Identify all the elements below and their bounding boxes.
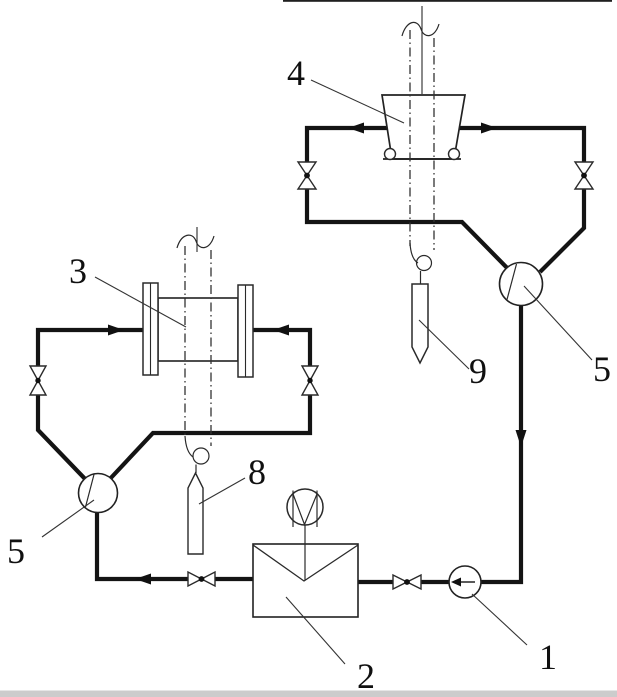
valve-icon-loop4-left [298,162,316,189]
valve-icon-loop4-right [575,162,593,189]
break-symbol-4 [402,22,439,36]
flow-arrow-bottom-left [135,574,151,585]
label-5-left: 5 [7,531,25,571]
flow-arrow-into-3-right [273,325,289,336]
pipe-loop3-right-upper [253,330,310,367]
pipe-riser-left [97,511,188,579]
valves [30,162,593,589]
leader-label-5-right [524,286,592,360]
pipe-loop3-bottom-run [108,394,310,481]
pipe-loop4-left-upper [307,128,387,163]
label-3: 3 [69,251,87,291]
process-flow-diagram: 4 3 9 5 5 8 2 1 [0,0,617,697]
scan-artifact-top-line [283,0,612,2]
valve-icon-loop3-left [30,366,46,395]
vessel-3-body [158,298,238,361]
vessel-4 [382,95,465,160]
lance-9 [412,284,428,363]
vessel-3 [143,283,253,377]
centerline-3-hook [185,436,193,457]
pipe-loop3-left-lower [38,394,88,482]
motor-icon [287,489,323,527]
flow-arrow-downcomer [516,430,527,447]
pipe-loop3-left-upper [38,330,143,367]
valve-icon-bottom-left [188,572,215,586]
scan-artifact-bottom-band [0,691,617,697]
vessel-4-right-roller [449,149,460,160]
label-5-right: 5 [593,349,611,389]
label-2: 2 [357,656,375,696]
centerline-4-loop [417,256,432,271]
pipe-loop4-right-upper [459,128,584,163]
vessel-4-left-roller [385,149,396,160]
leader-label-5-left [42,500,94,537]
flow-arrow-right-of-4 [481,123,497,134]
label-4: 4 [287,53,305,93]
tank-2 [253,489,358,617]
label-1: 1 [539,637,557,677]
break-symbol-3 [177,235,214,248]
pipe-downcomer-right [481,303,521,582]
flow-arrow-left-of-4 [348,123,364,134]
leader-label-1 [472,594,527,645]
label-9: 9 [469,351,487,391]
valve-icon-bottom-right [393,575,421,589]
flow-arrow-into-3-left [108,325,124,336]
ampoule-8 [188,473,203,554]
pipe-loop4-left-lower [307,188,516,277]
leader-label-8 [199,478,245,504]
label-8: 8 [248,452,266,492]
process-flow-diagram-page: 4 3 9 5 5 8 2 1 [0,0,617,697]
centerline-3-loop [193,448,209,464]
pump-1 [449,566,481,598]
pipe-loop4-right-lower [540,188,584,272]
valve-icon-loop3-right [302,366,318,395]
